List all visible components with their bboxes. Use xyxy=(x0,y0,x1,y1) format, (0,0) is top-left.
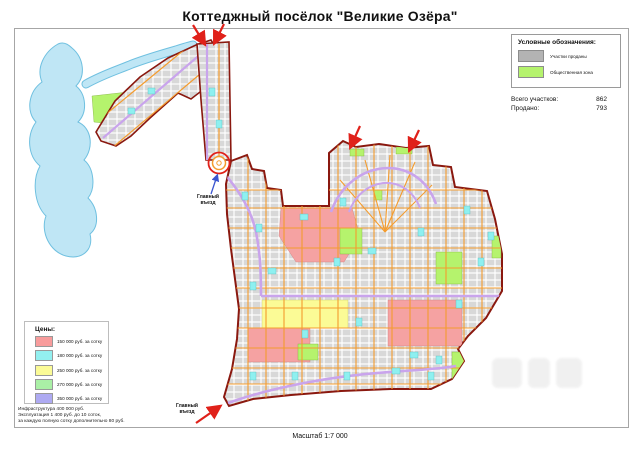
lake xyxy=(30,43,97,257)
legend-item-public: Общественная зона xyxy=(518,66,614,78)
price-zone-yellow xyxy=(262,300,348,328)
price-swatch-green xyxy=(35,379,53,390)
main-entrance-label-bottom: Главный въезд xyxy=(169,404,205,415)
stats-sold-label: Продано: xyxy=(511,104,539,113)
public-zone xyxy=(298,344,318,360)
entrance-pointer xyxy=(211,176,217,194)
price-item: 250 000 руб. за сотку xyxy=(35,365,108,376)
watermark xyxy=(492,352,592,394)
price-label: 150 000 руб. за сотку xyxy=(57,339,102,344)
map-scale-label: Масштаб 1:7 000 xyxy=(0,433,640,440)
legend-item-sold: Участки проданы xyxy=(518,50,614,62)
price-zone-pink-right xyxy=(388,300,462,346)
public-zone-swatch xyxy=(518,66,544,78)
site-plan-sheet: Коттеджный посёлок "Великие Озёра" xyxy=(0,0,640,452)
price-item: 270 000 руб. за сотку xyxy=(35,379,108,390)
main-entrance-label-top: Главный въезд xyxy=(190,195,226,206)
price-label: 250 000 руб. за сотку xyxy=(57,368,102,373)
price-swatch-purple xyxy=(35,393,53,404)
price-swatch-cyan xyxy=(35,350,53,361)
stats-block: Всего участков: 862 Продано: 793 xyxy=(511,95,607,113)
price-item: 180 000 руб. за сотку xyxy=(35,350,108,361)
main-settlement xyxy=(220,140,505,410)
stats-total-value: 862 xyxy=(596,95,607,104)
price-label: 270 000 руб. за сотку xyxy=(57,382,102,387)
public-zone xyxy=(350,149,364,156)
public-zone xyxy=(340,228,362,254)
price-item: 150 000 руб. за сотку xyxy=(35,336,108,347)
price-swatch-yellow xyxy=(35,365,53,376)
north-strip-section xyxy=(197,42,231,160)
legend-box: Условные обозначения: Участки проданы Об… xyxy=(511,34,621,88)
legend-item-label: Общественная зона xyxy=(550,70,593,75)
stats-sold-value: 793 xyxy=(596,104,607,113)
infrastructure-notes: Инфраструктура 400 000 руб. Эксплуатация… xyxy=(18,407,125,425)
stats-sold-row: Продано: 793 xyxy=(511,104,607,113)
price-label: 350 000 руб. за сотку xyxy=(57,396,102,401)
price-item: 350 000 руб. за сотку xyxy=(35,393,108,404)
price-legend-box: Цены: 150 000 руб. за сотку 180 000 руб.… xyxy=(24,321,109,404)
stats-total-label: Всего участков: xyxy=(511,95,558,104)
price-title: Цены: xyxy=(35,326,108,333)
stats-total-row: Всего участков: 862 xyxy=(511,95,607,104)
price-label: 180 000 руб. за сотку xyxy=(57,353,102,358)
legend-title: Условные обозначения: xyxy=(518,39,614,46)
sold-parcel-swatch xyxy=(518,50,544,62)
price-swatch-pink xyxy=(35,336,53,347)
note-line: за каждую полную сотку дополнительно 80 … xyxy=(18,419,125,425)
legend-item-label: Участки проданы xyxy=(550,54,587,59)
